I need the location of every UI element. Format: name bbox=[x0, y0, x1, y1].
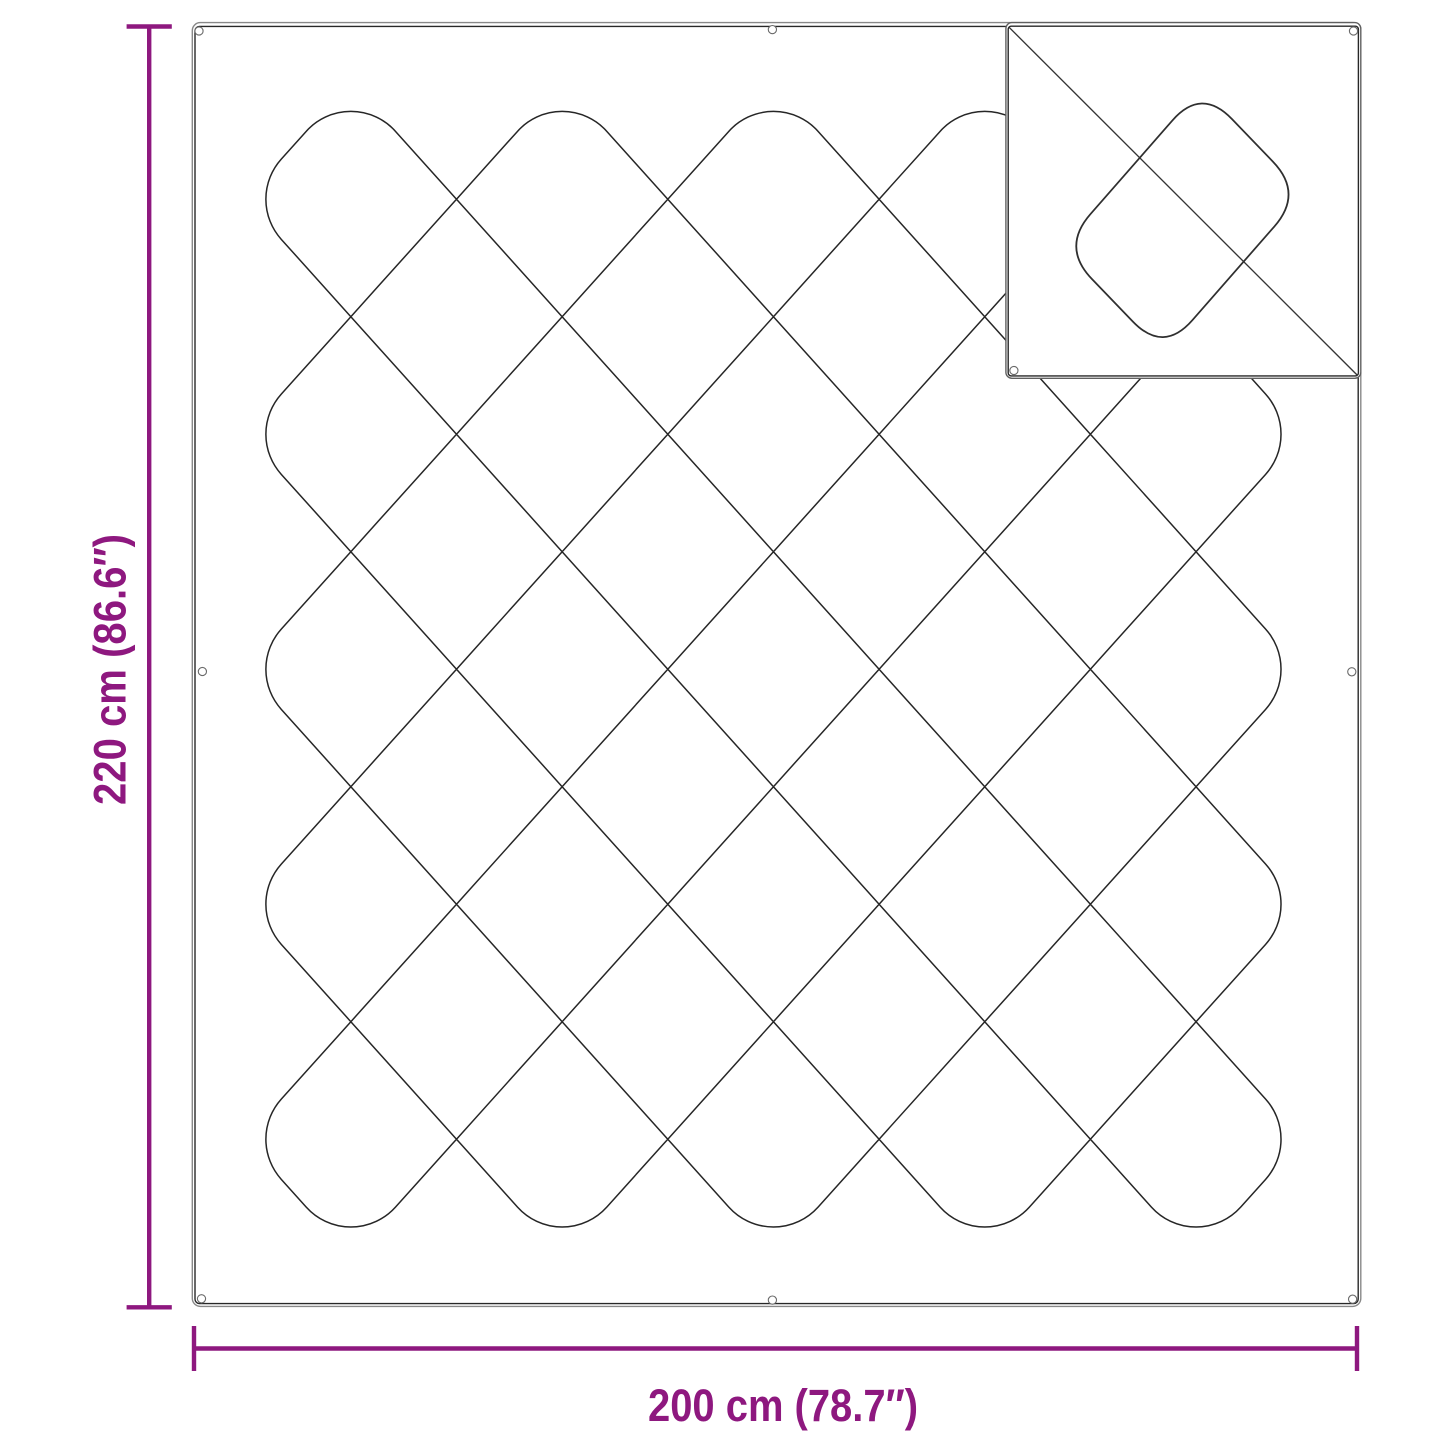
svg-text:200 cm (78.7″): 200 cm (78.7″) bbox=[648, 1380, 918, 1431]
svg-text:220 cm (86.6″): 220 cm (86.6″) bbox=[84, 534, 135, 805]
